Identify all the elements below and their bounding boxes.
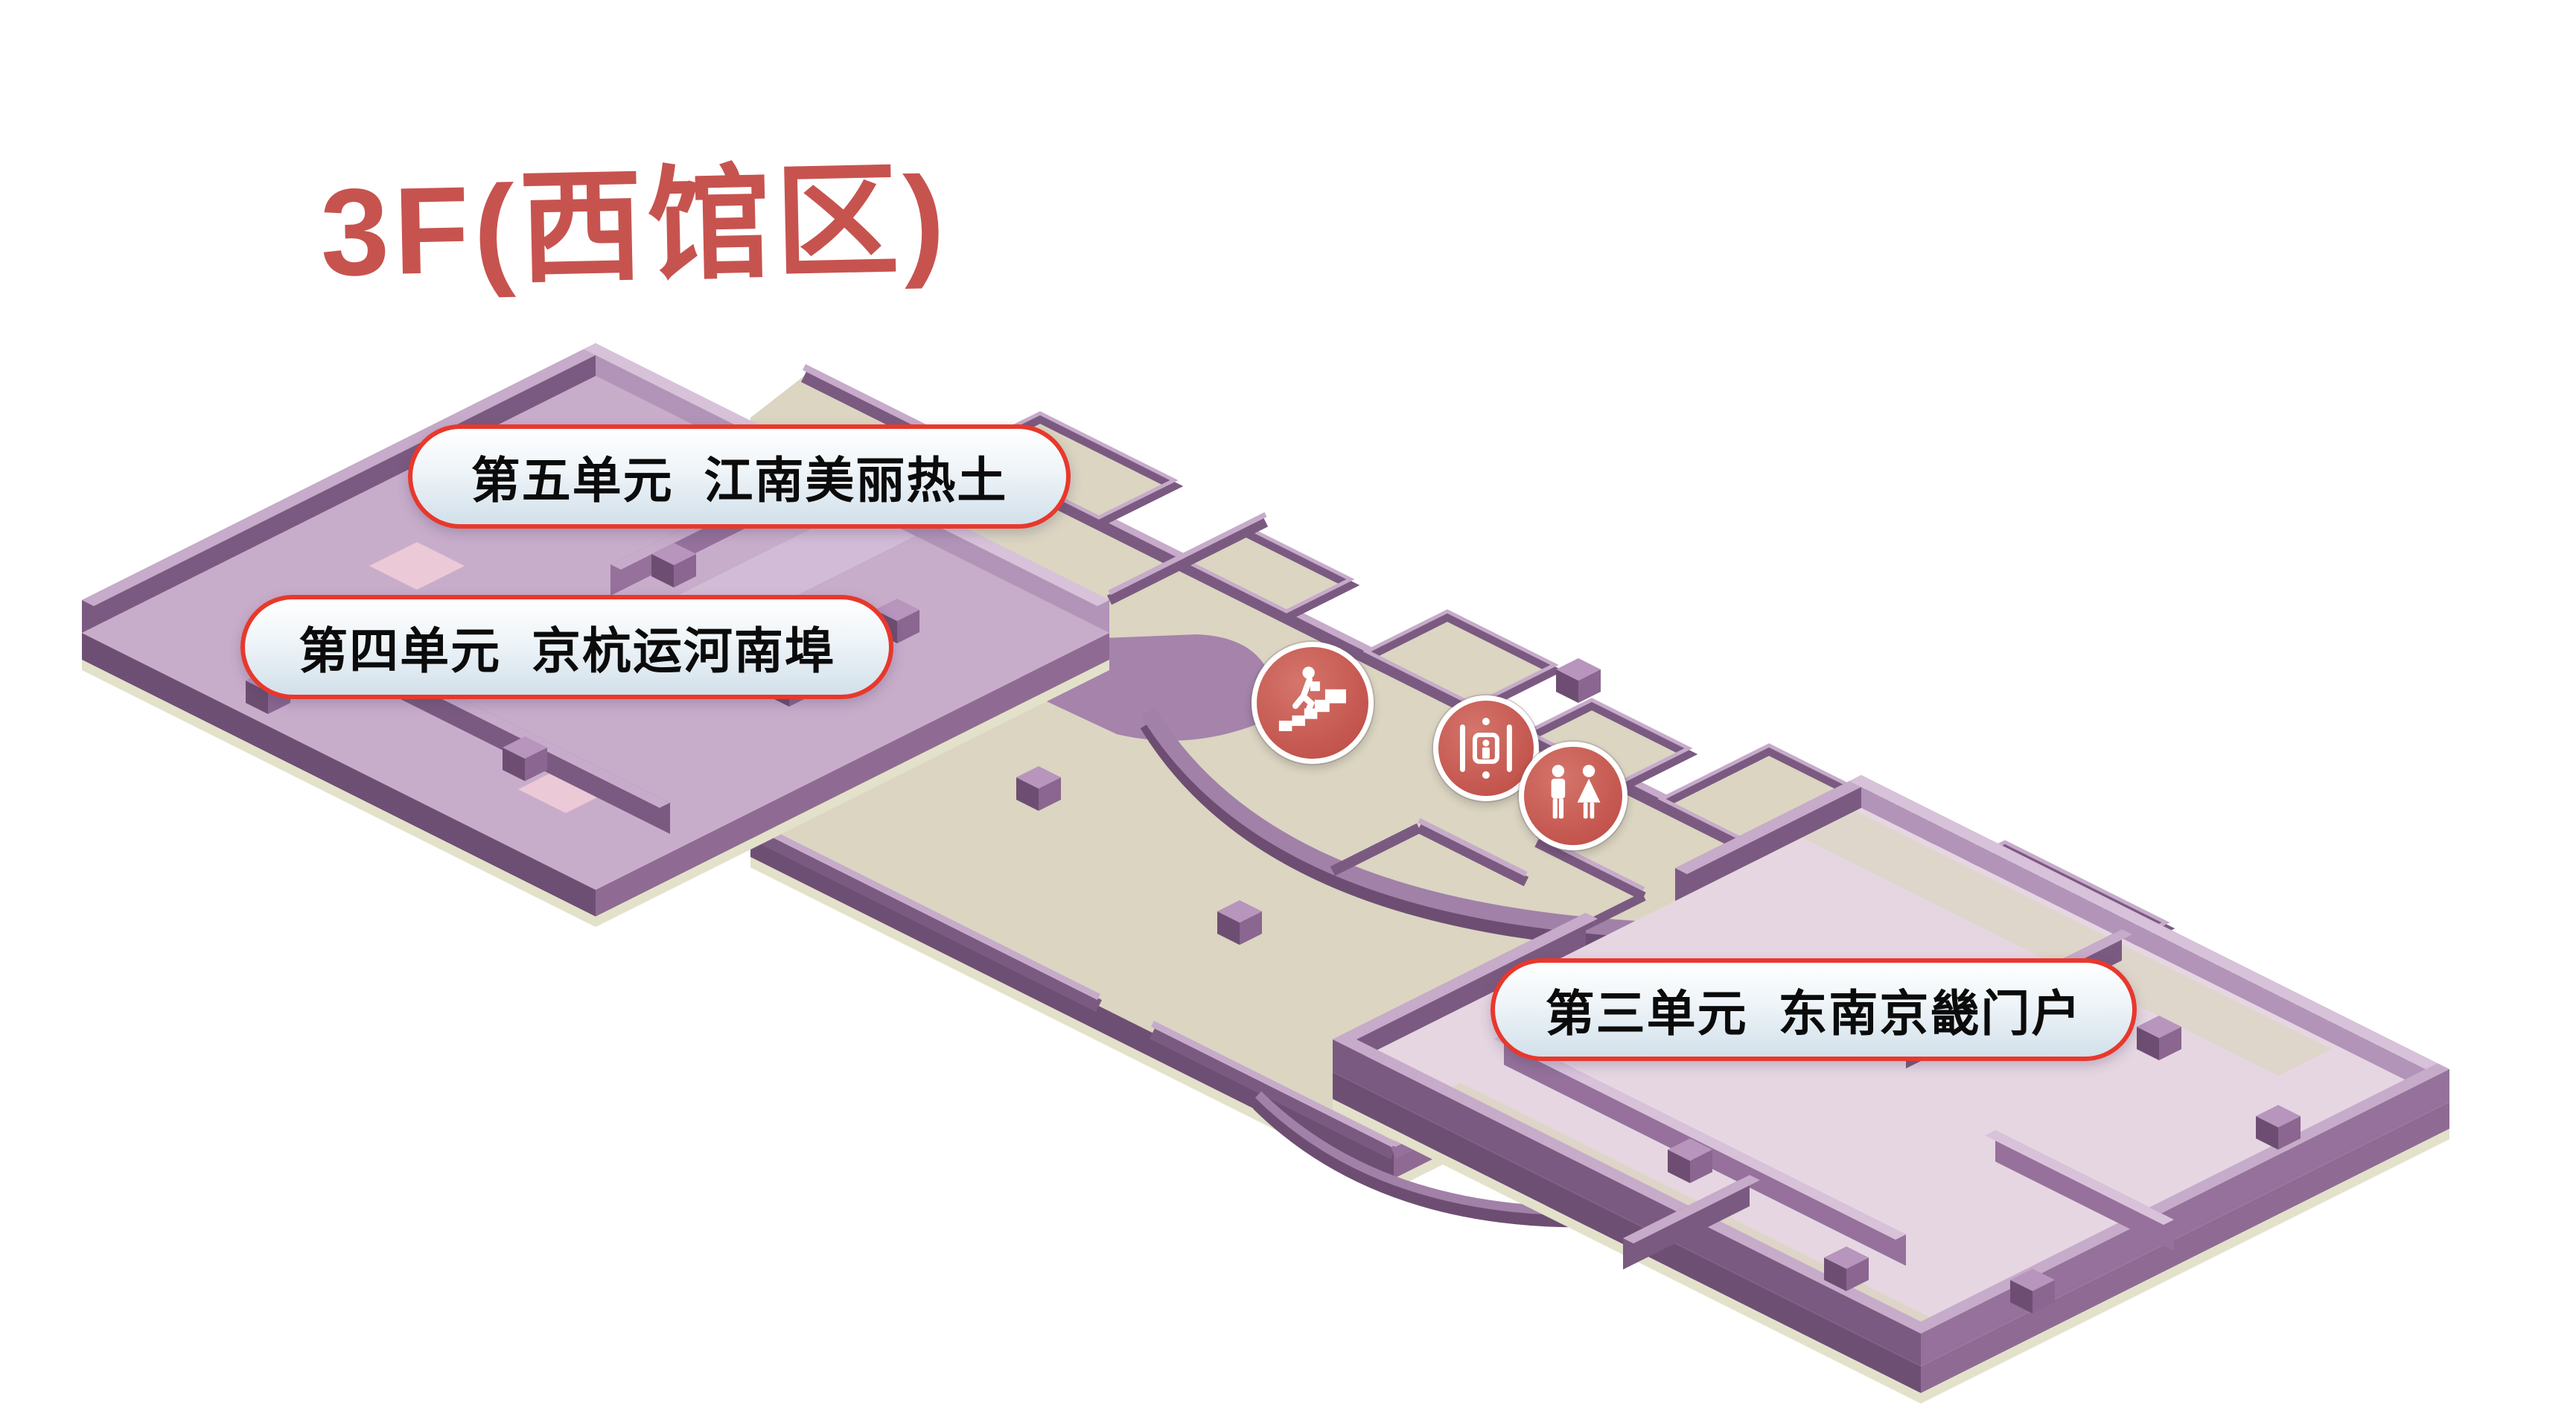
unit-label-4-text: 第四单元 京杭运河南埠 — [299, 611, 835, 683]
floor-map: 3F(西馆区) 第五单元 江南美丽热土 第四单元 京杭运河南埠 第三单元 东南京… — [0, 0, 2576, 1408]
page-title: 3F(西馆区) — [319, 118, 951, 311]
restroom-glyph — [1535, 758, 1612, 835]
unit-label-5: 第五单元 江南美丽热土 — [408, 424, 1071, 529]
elevator-glyph — [1449, 711, 1523, 786]
unit-label-4: 第四单元 京杭运河南埠 — [240, 595, 893, 699]
restroom-icon — [1519, 742, 1627, 850]
exhibit-plinth — [1556, 658, 1601, 703]
stairs-glyph — [1269, 660, 1356, 747]
unit-label-3: 第三单元 东南京畿门户 — [1491, 958, 2137, 1061]
unit-label-5-text: 第五单元 江南美丽热土 — [471, 441, 1008, 512]
unit-label-3-text: 第三单元 东南京畿门户 — [1546, 974, 2082, 1045]
stairs-icon — [1252, 642, 1374, 764]
